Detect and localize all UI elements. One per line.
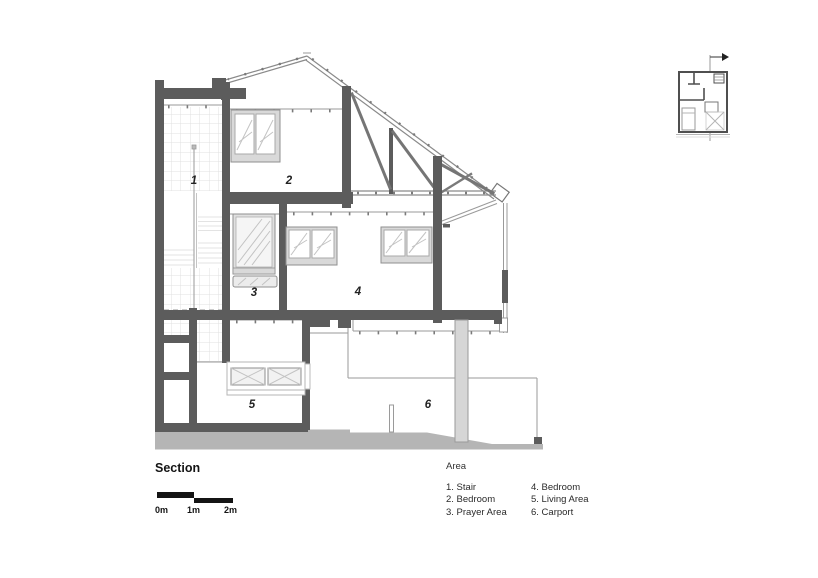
legend-item: 2. Bedroom [446, 494, 507, 506]
scale-bar-segment-1 [157, 492, 194, 498]
carport-column [455, 320, 468, 442]
stair-roof-slab [155, 88, 246, 99]
truss-post-a [342, 86, 351, 208]
stair-right-wall [222, 99, 230, 363]
carport [348, 320, 542, 444]
legend-item: 5. Living Area [531, 494, 589, 506]
key-plan [676, 53, 730, 141]
scale-label-2m: 2m [224, 505, 237, 515]
scale-label-0m: 0m [155, 505, 168, 515]
scale-label-1m: 1m [187, 505, 200, 515]
legend-column-1: 1. Stair 2. Bedroom 3. Prayer Area [446, 482, 507, 519]
room-label-bedroom-upper: 2 [286, 175, 292, 187]
legend-item: 6. Carport [531, 507, 589, 519]
lower-interior-wall [189, 308, 197, 428]
room-label-prayer: 3 [251, 287, 257, 299]
stair-flights [164, 217, 222, 265]
window-bedroom-mid-1 [286, 227, 337, 265]
carport-post [390, 405, 394, 432]
ground-slab [155, 423, 308, 432]
window-bedroom-upper [231, 110, 280, 162]
prayer-bench [233, 276, 277, 287]
prayer-panel [233, 214, 275, 274]
left-outer-wall [155, 80, 164, 432]
floor-slab-upper [222, 192, 353, 204]
legend-title: Area [446, 461, 466, 472]
room4-right-wall [433, 156, 442, 323]
section-drawing [0, 0, 818, 578]
legend-item: 3. Prayer Area [446, 507, 507, 519]
room-label-stair: 1 [191, 175, 197, 187]
legend-item: 1. Stair [446, 482, 507, 494]
legend-column-2: 4. Bedroom 5. Living Area 6. Carport [531, 482, 589, 519]
page: { "section": { "title": "Section", "labe… [0, 0, 818, 578]
room-label-carport: 6 [425, 399, 431, 411]
legend-item: 4. Bedroom [531, 482, 589, 494]
window-bedroom-mid-2 [381, 227, 432, 263]
scale-bar-segment-2 [194, 498, 233, 504]
drawing-title: Section [155, 461, 200, 475]
carport-wall-foot [534, 437, 542, 444]
ground [155, 430, 543, 450]
room-label-bedroom-mid: 4 [355, 286, 361, 298]
section-arrow-icon [722, 53, 729, 61]
terrace-ceiling [442, 200, 497, 228]
room-label-living: 5 [249, 399, 255, 411]
living-cabinet [227, 362, 305, 395]
